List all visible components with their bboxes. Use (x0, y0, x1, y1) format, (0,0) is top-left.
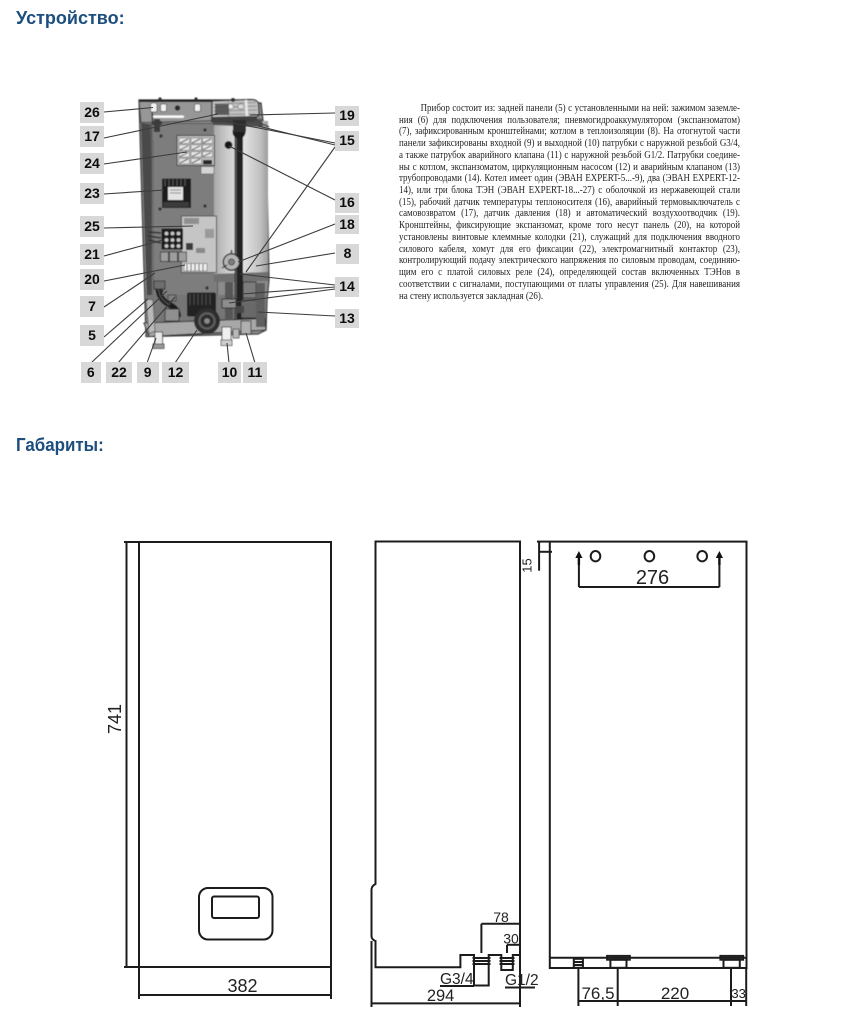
svg-text:78: 78 (493, 909, 509, 925)
svg-text:220: 220 (661, 984, 689, 1003)
svg-text:33: 33 (731, 986, 745, 1001)
svg-text:30: 30 (503, 931, 519, 947)
svg-text:382: 382 (227, 976, 257, 996)
svg-text:G3/4: G3/4 (440, 971, 474, 988)
svg-text:276: 276 (636, 567, 669, 589)
svg-text:G1/2: G1/2 (505, 972, 539, 989)
svg-text:76,5: 76,5 (581, 984, 614, 1003)
svg-text:741: 741 (105, 704, 125, 734)
svg-text:15: 15 (520, 558, 535, 572)
svg-text:294: 294 (427, 987, 455, 1005)
